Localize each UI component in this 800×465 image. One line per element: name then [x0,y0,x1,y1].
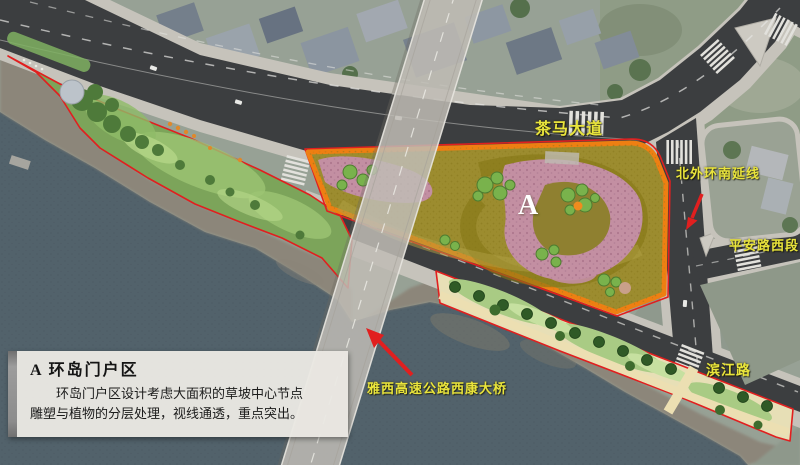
info-box-body-line1: 环岛门户区设计考虑大面积的草坡中心节点 [30,384,340,404]
site-plan-map: 茶马大道 北外环南延线 平安路西段 滨江路 雅西高速公路西康大桥 A A 环岛门… [0,0,800,465]
plaza-circle [60,80,84,104]
plaza-rect [545,151,580,165]
info-box: A 环岛门户区 环岛门户区设计考虑大面积的草坡中心节点 雕塑与植物的分层处理，视… [8,351,348,437]
info-box-content: A 环岛门户区 环岛门户区设计考虑大面积的草坡中心节点 雕塑与植物的分层处理，视… [17,351,348,437]
tan-tree [619,282,631,294]
sculpture-node [574,202,583,211]
info-box-side-bar [8,351,17,437]
info-box-title: A 环岛门户区 [30,356,340,380]
info-box-body-line2: 雕塑与植物的分层处理，视线通透，重点突出。 [30,404,340,424]
